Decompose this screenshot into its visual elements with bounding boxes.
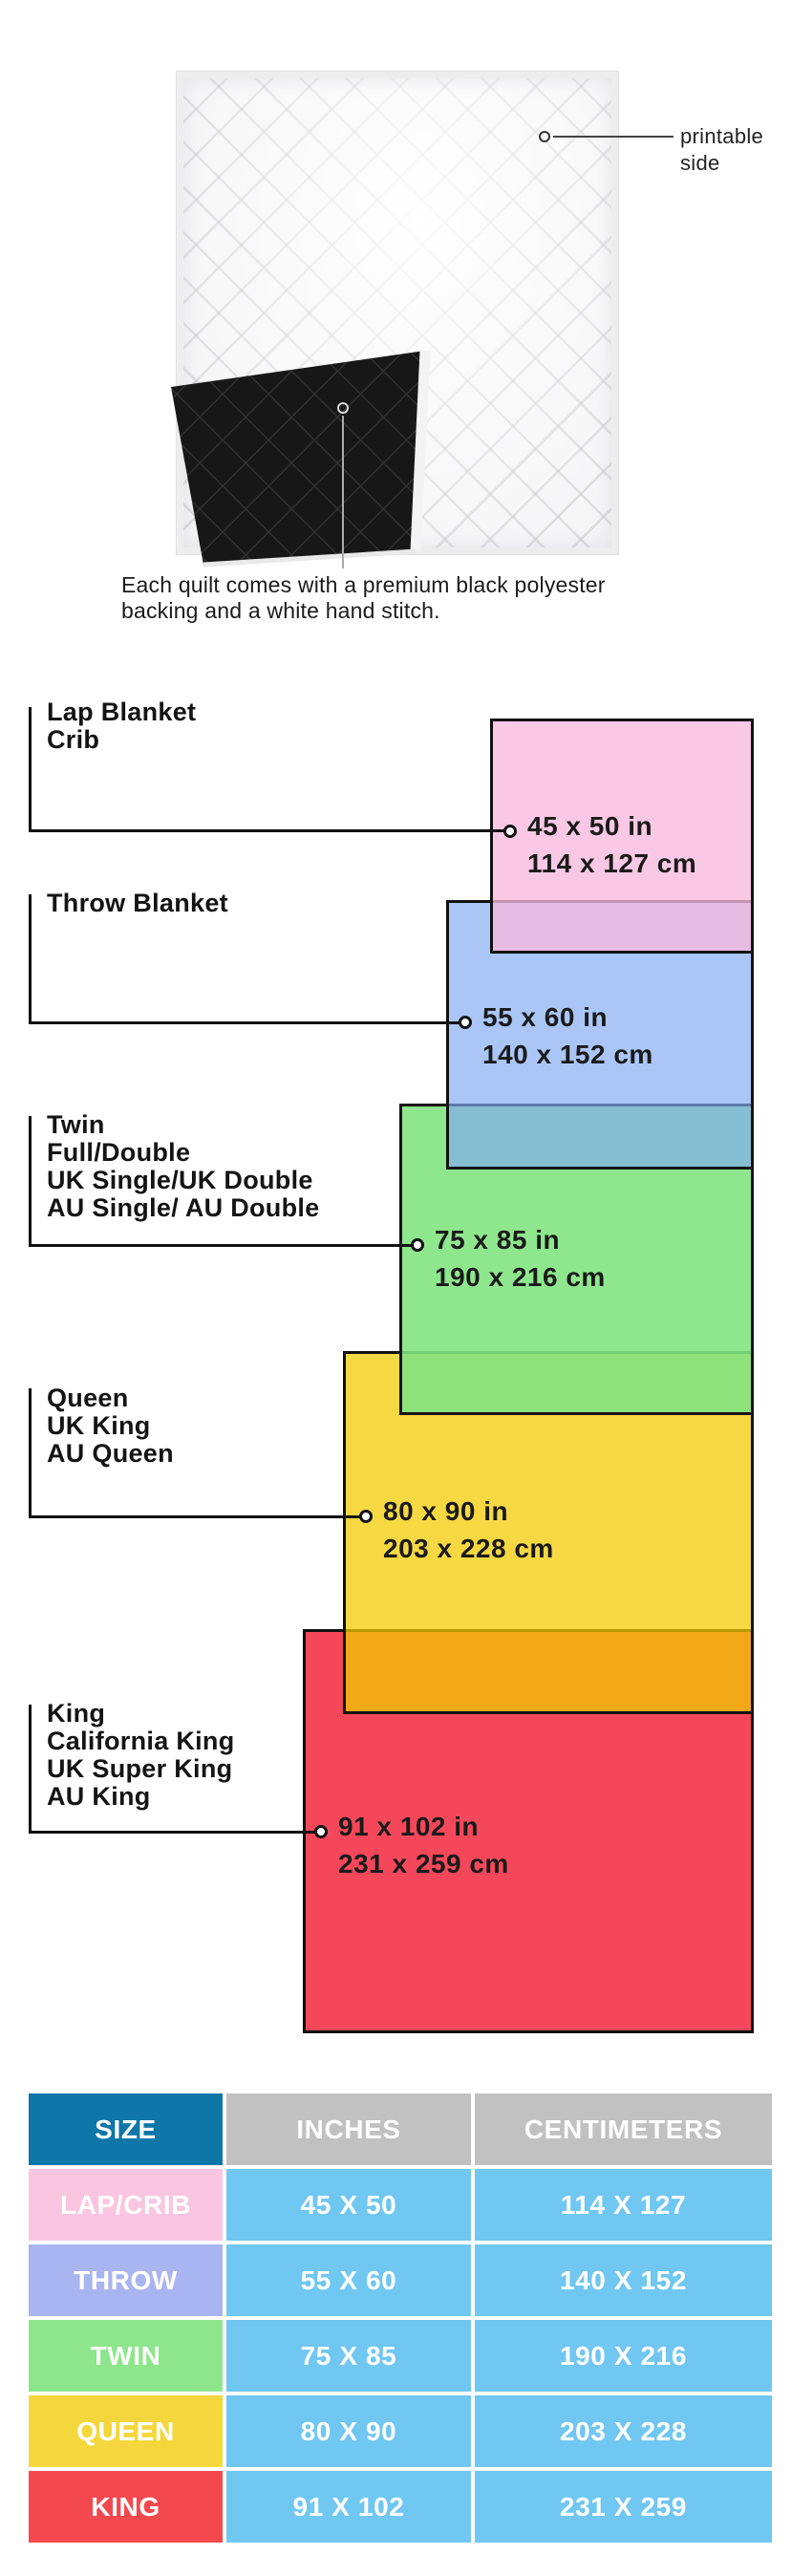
label-line: UK Single/UK Double <box>47 1167 320 1194</box>
label-line: AU Single/ AU Double <box>47 1194 320 1222</box>
table-row-lap-crib-size: LAP/CRIB <box>29 2169 223 2241</box>
table-row-lap-crib-cm: 114 X 127 <box>475 2169 772 2241</box>
dims-throw-cm: 140 x 152 cm <box>482 1036 653 1073</box>
label-line: UK Super King <box>47 1755 235 1783</box>
size-table: SIZE INCHES CENTIMETERS LAP/CRIB 45 X 50… <box>29 2093 772 2543</box>
dims-lap-crib: 45 x 50 in 114 x 127 cm <box>527 807 696 882</box>
printable-side-line1: printable <box>680 123 763 150</box>
table-row-queen-size: QUEEN <box>29 2395 223 2467</box>
leader-king-h <box>29 1831 315 1834</box>
table-row-twin-inches: 75 X 85 <box>226 2320 471 2392</box>
leader-lap-crib-h <box>29 829 504 832</box>
table-row-queen-cm: 203 X 228 <box>475 2395 772 2467</box>
label-line: AU King <box>47 1783 235 1811</box>
dims-lap-crib-in: 45 x 50 in <box>527 807 696 845</box>
table-row-king-size: KING <box>29 2471 223 2543</box>
printable-side-line2: side <box>680 150 763 177</box>
quilt-folded-corner <box>158 66 628 582</box>
printable-side-marker-icon <box>539 131 550 142</box>
label-line: King <box>47 1700 235 1728</box>
leader-queen-v <box>29 1388 32 1518</box>
table-row-queen-inches: 80 X 90 <box>226 2395 471 2467</box>
label-queen: Queen UK King AU Queen <box>47 1385 174 1468</box>
dims-twin: 75 x 85 in 190 x 216 cm <box>435 1221 606 1296</box>
dims-twin-cm: 190 x 216 cm <box>435 1258 606 1296</box>
label-line: UK King <box>47 1412 174 1440</box>
quilt-photo <box>177 72 618 554</box>
table-row-throw-inches: 55 X 60 <box>226 2244 471 2316</box>
table-header-size: SIZE <box>29 2093 223 2165</box>
dims-lap-crib-cm: 114 x 127 cm <box>527 845 696 882</box>
leader-throw-h <box>29 1021 460 1024</box>
quilt-caption: Each quilt comes with a premium black po… <box>121 572 606 623</box>
leader-throw-v <box>29 894 32 1024</box>
label-line: California King <box>47 1728 235 1755</box>
printable-side-label: printable side <box>680 123 763 177</box>
label-line: Twin <box>47 1111 320 1139</box>
marker-twin-icon <box>411 1238 424 1252</box>
label-lap-crib: Lap Blanket Crib <box>47 698 196 754</box>
label-line: Lap Blanket <box>47 698 196 726</box>
table-row-throw-size: THROW <box>29 2244 223 2316</box>
black-backing-leader-line <box>342 416 344 569</box>
dims-queen-in: 80 x 90 in <box>383 1492 554 1530</box>
leader-twin-v <box>29 1116 32 1247</box>
table-row-lap-crib-inches: 45 X 50 <box>226 2169 471 2241</box>
dims-twin-in: 75 x 85 in <box>435 1221 606 1258</box>
marker-throw-icon <box>459 1016 472 1029</box>
label-king: King California King UK Super King AU Ki… <box>47 1700 235 1811</box>
label-line: Full/Double <box>47 1139 320 1167</box>
dims-king-cm: 231 x 259 cm <box>338 1845 509 1882</box>
table-row-twin-size: TWIN <box>29 2320 223 2392</box>
table-row-twin-cm: 190 X 216 <box>475 2320 772 2392</box>
dims-queen: 80 x 90 in 203 x 228 cm <box>383 1492 554 1567</box>
table-row-king-inches: 91 X 102 <box>226 2471 471 2543</box>
black-backing-marker-icon <box>337 402 349 414</box>
label-line: AU Queen <box>47 1440 174 1468</box>
table-row-king-cm: 231 X 259 <box>475 2471 772 2543</box>
label-line: Crib <box>47 726 196 754</box>
marker-king-icon <box>314 1825 328 1838</box>
marker-queen-icon <box>359 1510 373 1523</box>
dims-king-in: 91 x 102 in <box>338 1808 509 1845</box>
label-line: Throw Blanket <box>47 890 228 917</box>
leader-lap-crib-v <box>29 707 32 832</box>
leader-king-v <box>29 1705 32 1834</box>
dims-throw: 55 x 60 in 140 x 152 cm <box>482 998 653 1073</box>
table-header-inches: INCHES <box>226 2093 471 2165</box>
dims-queen-cm: 203 x 228 cm <box>383 1530 554 1567</box>
size-chart-infographic: printable side Each quilt comes with a p… <box>0 0 791 2576</box>
quilt-caption-line2: backing and a white hand stitch. <box>121 598 606 624</box>
table-header-centimeters: CENTIMETERS <box>475 2093 772 2165</box>
label-throw: Throw Blanket <box>47 890 228 917</box>
dims-king: 91 x 102 in 231 x 259 cm <box>338 1808 509 1882</box>
leader-queen-h <box>29 1515 360 1518</box>
dims-throw-in: 55 x 60 in <box>482 998 653 1036</box>
table-row-throw-cm: 140 X 152 <box>475 2244 772 2316</box>
marker-lap-crib-icon <box>503 825 517 838</box>
printable-side-leader-line <box>553 136 673 138</box>
label-twin: Twin Full/Double UK Single/UK Double AU … <box>47 1111 320 1222</box>
quilt-caption-line1: Each quilt comes with a premium black po… <box>121 572 606 598</box>
label-line: Queen <box>47 1385 174 1412</box>
leader-twin-h <box>29 1244 412 1247</box>
